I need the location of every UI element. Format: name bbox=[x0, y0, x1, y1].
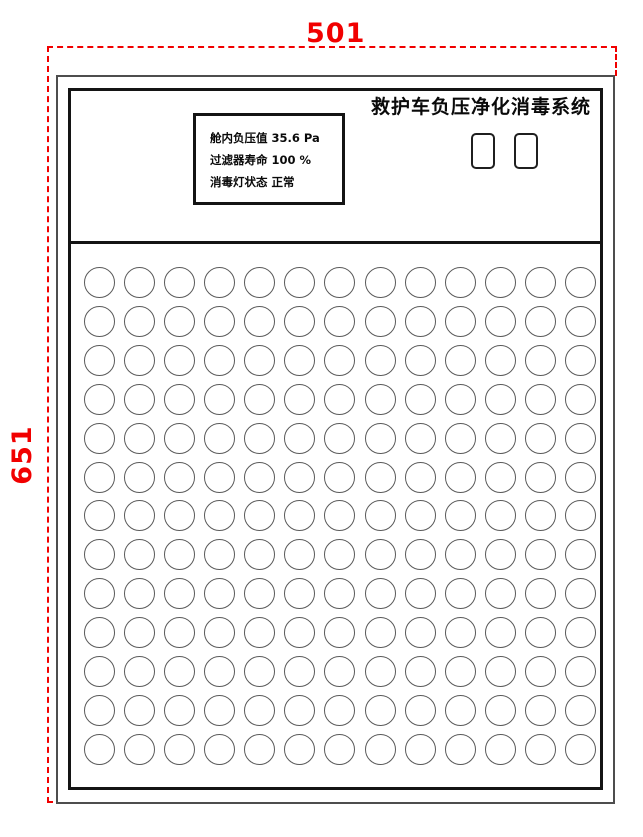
vent-hole bbox=[124, 500, 155, 531]
vent-hole bbox=[565, 267, 596, 298]
disinfection-lamp-status-value: 正常 bbox=[272, 175, 295, 189]
vent-hole bbox=[445, 306, 476, 337]
vent-hole bbox=[324, 656, 355, 687]
vent-hole bbox=[365, 539, 396, 570]
vent-hole bbox=[204, 656, 235, 687]
vent-hole bbox=[204, 267, 235, 298]
vent-hole bbox=[365, 267, 396, 298]
vent-hole bbox=[365, 306, 396, 337]
vent-hole bbox=[244, 345, 275, 376]
vent-hole bbox=[124, 345, 155, 376]
vent-hole bbox=[445, 695, 476, 726]
vent-hole bbox=[84, 345, 115, 376]
vent-hole bbox=[365, 345, 396, 376]
cabin-pressure-value: 35.6 Pa bbox=[272, 131, 320, 145]
vent-hole bbox=[525, 384, 556, 415]
vent-hole bbox=[525, 500, 556, 531]
vent-hole bbox=[84, 500, 115, 531]
vent-hole bbox=[244, 539, 275, 570]
vent-hole bbox=[405, 500, 436, 531]
cabin-pressure-label: 舱内负压值 bbox=[210, 131, 268, 145]
width-dimension-label: 501 bbox=[306, 20, 365, 47]
vent-hole bbox=[284, 267, 315, 298]
vent-hole bbox=[525, 267, 556, 298]
status-display-screen: 舱内负压值 35.6 Pa 过滤器寿命 100 % 消毒灯状态 正常 bbox=[193, 113, 345, 205]
vent-hole bbox=[284, 500, 315, 531]
vent-hole bbox=[124, 695, 155, 726]
vent-hole bbox=[445, 384, 476, 415]
vent-hole bbox=[445, 267, 476, 298]
vent-hole bbox=[124, 462, 155, 493]
vent-hole bbox=[124, 384, 155, 415]
vent-hole bbox=[485, 384, 516, 415]
vent-hole bbox=[244, 617, 275, 648]
vent-hole bbox=[365, 734, 396, 765]
vent-hole bbox=[204, 578, 235, 609]
vent-hole bbox=[164, 734, 195, 765]
vent-hole bbox=[485, 539, 516, 570]
vent-hole bbox=[124, 423, 155, 454]
vent-hole bbox=[284, 384, 315, 415]
vent-hole bbox=[405, 462, 436, 493]
vent-hole bbox=[565, 578, 596, 609]
vent-hole bbox=[324, 617, 355, 648]
vent-hole bbox=[84, 539, 115, 570]
vent-hole bbox=[84, 695, 115, 726]
vent-hole bbox=[485, 267, 516, 298]
vent-hole bbox=[485, 500, 516, 531]
vent-hole bbox=[485, 306, 516, 337]
vent-hole bbox=[324, 267, 355, 298]
panel-title: 救护车负压净化消毒系统 bbox=[361, 92, 601, 119]
vent-hole bbox=[164, 500, 195, 531]
vent-hole bbox=[565, 500, 596, 531]
vent-hole bbox=[525, 306, 556, 337]
vent-hole bbox=[164, 345, 195, 376]
vent-hole bbox=[124, 306, 155, 337]
vent-hole bbox=[164, 578, 195, 609]
vent-hole bbox=[525, 617, 556, 648]
vent-hole bbox=[405, 578, 436, 609]
vent-hole bbox=[525, 539, 556, 570]
vent-hole bbox=[84, 423, 115, 454]
vent-hole bbox=[365, 423, 396, 454]
vent-hole bbox=[284, 617, 315, 648]
vent-hole bbox=[365, 462, 396, 493]
vent-hole bbox=[284, 578, 315, 609]
vent-hole bbox=[124, 734, 155, 765]
vent-hole bbox=[244, 695, 275, 726]
vent-hole bbox=[405, 267, 436, 298]
vent-hole bbox=[445, 656, 476, 687]
vent-hole bbox=[324, 734, 355, 765]
vent-hole bbox=[124, 656, 155, 687]
filter-life-label: 过滤器寿命 bbox=[210, 153, 268, 167]
vent-hole bbox=[365, 695, 396, 726]
vent-hole bbox=[84, 462, 115, 493]
vent-hole bbox=[164, 384, 195, 415]
vent-hole bbox=[324, 695, 355, 726]
vent-hole bbox=[324, 500, 355, 531]
vent-hole bbox=[244, 384, 275, 415]
vent-hole bbox=[525, 462, 556, 493]
vent-hole bbox=[324, 345, 355, 376]
vent-hole bbox=[525, 345, 556, 376]
vent-hole bbox=[445, 617, 476, 648]
vent-hole bbox=[405, 423, 436, 454]
vent-hole bbox=[204, 462, 235, 493]
vent-hole bbox=[405, 345, 436, 376]
vent-hole bbox=[485, 578, 516, 609]
vent-hole bbox=[124, 617, 155, 648]
vent-hole bbox=[164, 656, 195, 687]
vent-hole bbox=[164, 306, 195, 337]
vent-hole bbox=[164, 267, 195, 298]
vent-hole bbox=[244, 267, 275, 298]
vent-hole bbox=[445, 345, 476, 376]
vent-hole bbox=[405, 734, 436, 765]
disinfection-lamp-status-label: 消毒灯状态 bbox=[210, 175, 268, 189]
vent-hole bbox=[365, 578, 396, 609]
width-dimension-extension bbox=[615, 46, 617, 76]
vent-hole bbox=[324, 578, 355, 609]
vent-hole bbox=[565, 423, 596, 454]
vent-hole bbox=[204, 423, 235, 454]
vent-hole bbox=[405, 617, 436, 648]
vent-hole bbox=[164, 539, 195, 570]
vent-hole bbox=[485, 617, 516, 648]
vent-hole bbox=[244, 306, 275, 337]
vent-hole bbox=[84, 578, 115, 609]
vent-hole bbox=[365, 500, 396, 531]
vent-hole bbox=[405, 306, 436, 337]
vent-hole bbox=[324, 539, 355, 570]
vent-hole bbox=[445, 539, 476, 570]
vent-hole bbox=[244, 423, 275, 454]
vent-hole bbox=[565, 306, 596, 337]
vent-hole bbox=[525, 656, 556, 687]
vent-hole bbox=[204, 734, 235, 765]
disinfection-lamp-status-row: 消毒灯状态 正常 bbox=[210, 171, 342, 193]
vent-hole bbox=[525, 734, 556, 765]
vent-hole bbox=[204, 500, 235, 531]
vent-hole bbox=[164, 423, 195, 454]
vent-hole bbox=[485, 695, 516, 726]
vent-hole bbox=[324, 423, 355, 454]
vent-hole bbox=[84, 384, 115, 415]
vent-hole bbox=[485, 734, 516, 765]
height-dimension-label: 651 bbox=[9, 423, 35, 487]
vent-hole bbox=[485, 462, 516, 493]
vent-hole bbox=[284, 423, 315, 454]
vent-hole bbox=[565, 695, 596, 726]
vent-hole bbox=[565, 539, 596, 570]
panel-button-2[interactable] bbox=[514, 133, 538, 169]
vent-hole bbox=[284, 462, 315, 493]
vent-hole bbox=[84, 656, 115, 687]
vent-hole bbox=[284, 695, 315, 726]
vent-hole bbox=[124, 539, 155, 570]
vent-hole bbox=[164, 695, 195, 726]
vent-hole bbox=[405, 656, 436, 687]
vent-hole bbox=[284, 656, 315, 687]
vent-hole bbox=[525, 578, 556, 609]
ventilation-grid bbox=[84, 267, 596, 765]
vent-hole bbox=[84, 306, 115, 337]
vent-hole bbox=[244, 500, 275, 531]
vent-hole bbox=[244, 734, 275, 765]
vent-hole bbox=[84, 267, 115, 298]
vent-hole bbox=[485, 423, 516, 454]
vent-hole bbox=[525, 423, 556, 454]
vent-hole bbox=[164, 462, 195, 493]
vent-hole bbox=[164, 617, 195, 648]
vent-hole bbox=[365, 384, 396, 415]
vent-hole bbox=[204, 539, 235, 570]
vent-hole bbox=[525, 695, 556, 726]
vent-hole bbox=[204, 617, 235, 648]
vent-hole bbox=[565, 345, 596, 376]
vent-hole bbox=[324, 306, 355, 337]
cabin-pressure-row: 舱内负压值 35.6 Pa bbox=[210, 127, 342, 149]
vent-hole bbox=[405, 384, 436, 415]
vent-hole bbox=[204, 695, 235, 726]
vent-hole bbox=[284, 306, 315, 337]
vent-hole bbox=[565, 462, 596, 493]
vent-hole bbox=[565, 656, 596, 687]
vent-hole bbox=[244, 656, 275, 687]
header-divider bbox=[70, 241, 601, 244]
vent-hole bbox=[244, 462, 275, 493]
vent-hole bbox=[365, 656, 396, 687]
height-dimension-line bbox=[47, 46, 49, 803]
panel-button-1[interactable] bbox=[471, 133, 495, 169]
engineering-drawing: 501 651 救护车负压净化消毒系统 舱内负压值 35.6 Pa 过滤器寿命 … bbox=[0, 0, 643, 837]
vent-hole bbox=[284, 734, 315, 765]
vent-hole bbox=[204, 345, 235, 376]
vent-hole bbox=[405, 695, 436, 726]
vent-hole bbox=[244, 578, 275, 609]
vent-hole bbox=[284, 539, 315, 570]
vent-hole bbox=[485, 656, 516, 687]
vent-hole bbox=[124, 267, 155, 298]
vent-hole bbox=[84, 617, 115, 648]
vent-hole bbox=[445, 734, 476, 765]
vent-hole bbox=[124, 578, 155, 609]
vent-hole bbox=[565, 617, 596, 648]
vent-hole bbox=[565, 734, 596, 765]
vent-hole bbox=[204, 384, 235, 415]
vent-hole bbox=[365, 617, 396, 648]
vent-hole bbox=[445, 423, 476, 454]
vent-hole bbox=[324, 462, 355, 493]
vent-hole bbox=[445, 500, 476, 531]
vent-hole bbox=[565, 384, 596, 415]
vent-hole bbox=[84, 734, 115, 765]
filter-life-value: 100 % bbox=[272, 153, 312, 167]
filter-life-row: 过滤器寿命 100 % bbox=[210, 149, 342, 171]
vent-hole bbox=[324, 384, 355, 415]
vent-hole bbox=[204, 306, 235, 337]
vent-hole bbox=[405, 539, 436, 570]
vent-hole bbox=[445, 578, 476, 609]
vent-hole bbox=[445, 462, 476, 493]
vent-hole bbox=[284, 345, 315, 376]
vent-hole bbox=[485, 345, 516, 376]
